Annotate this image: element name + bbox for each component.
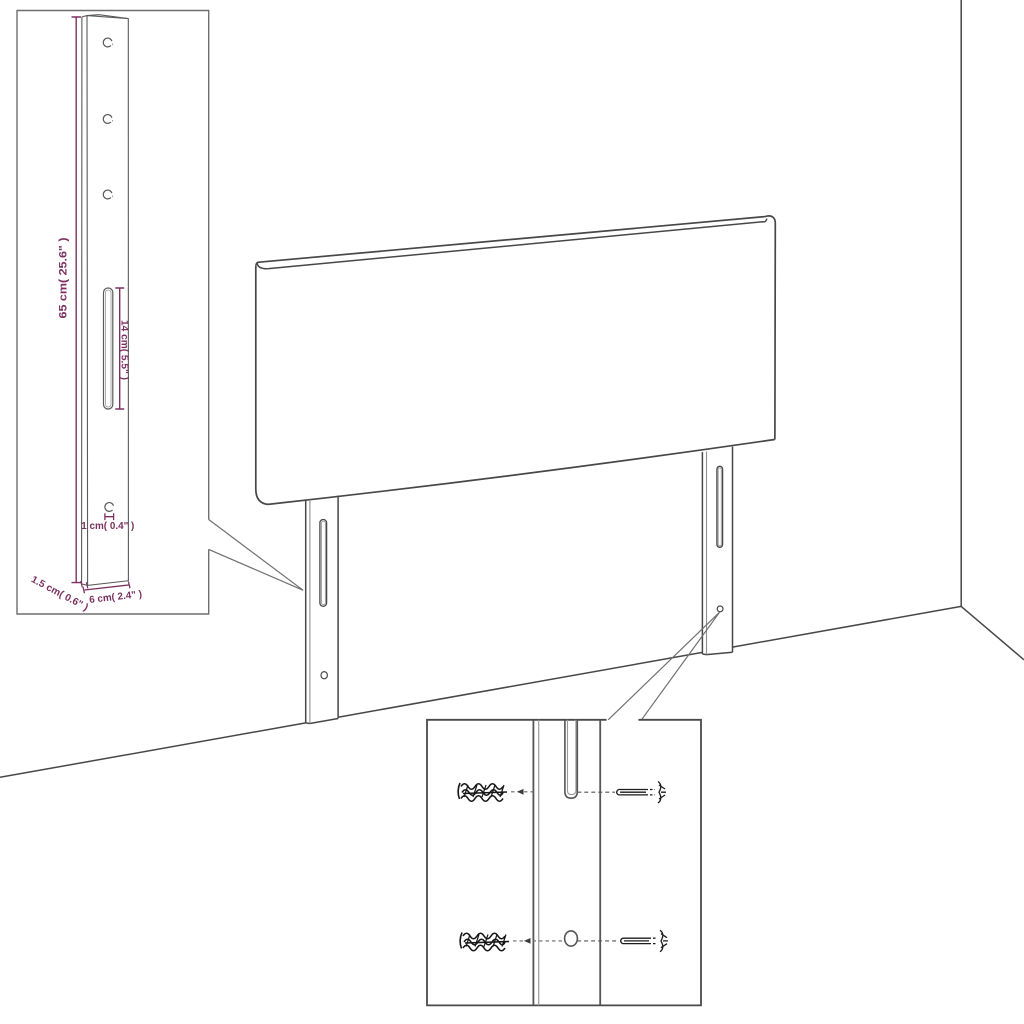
svg-text:14 cm( 5.5" ): 14 cm( 5.5" ) [118,320,129,380]
svg-text:1 cm( 0.4" ): 1 cm( 0.4" ) [81,521,134,532]
svg-text:65 cm( 25.6" ): 65 cm( 25.6" ) [57,237,69,318]
